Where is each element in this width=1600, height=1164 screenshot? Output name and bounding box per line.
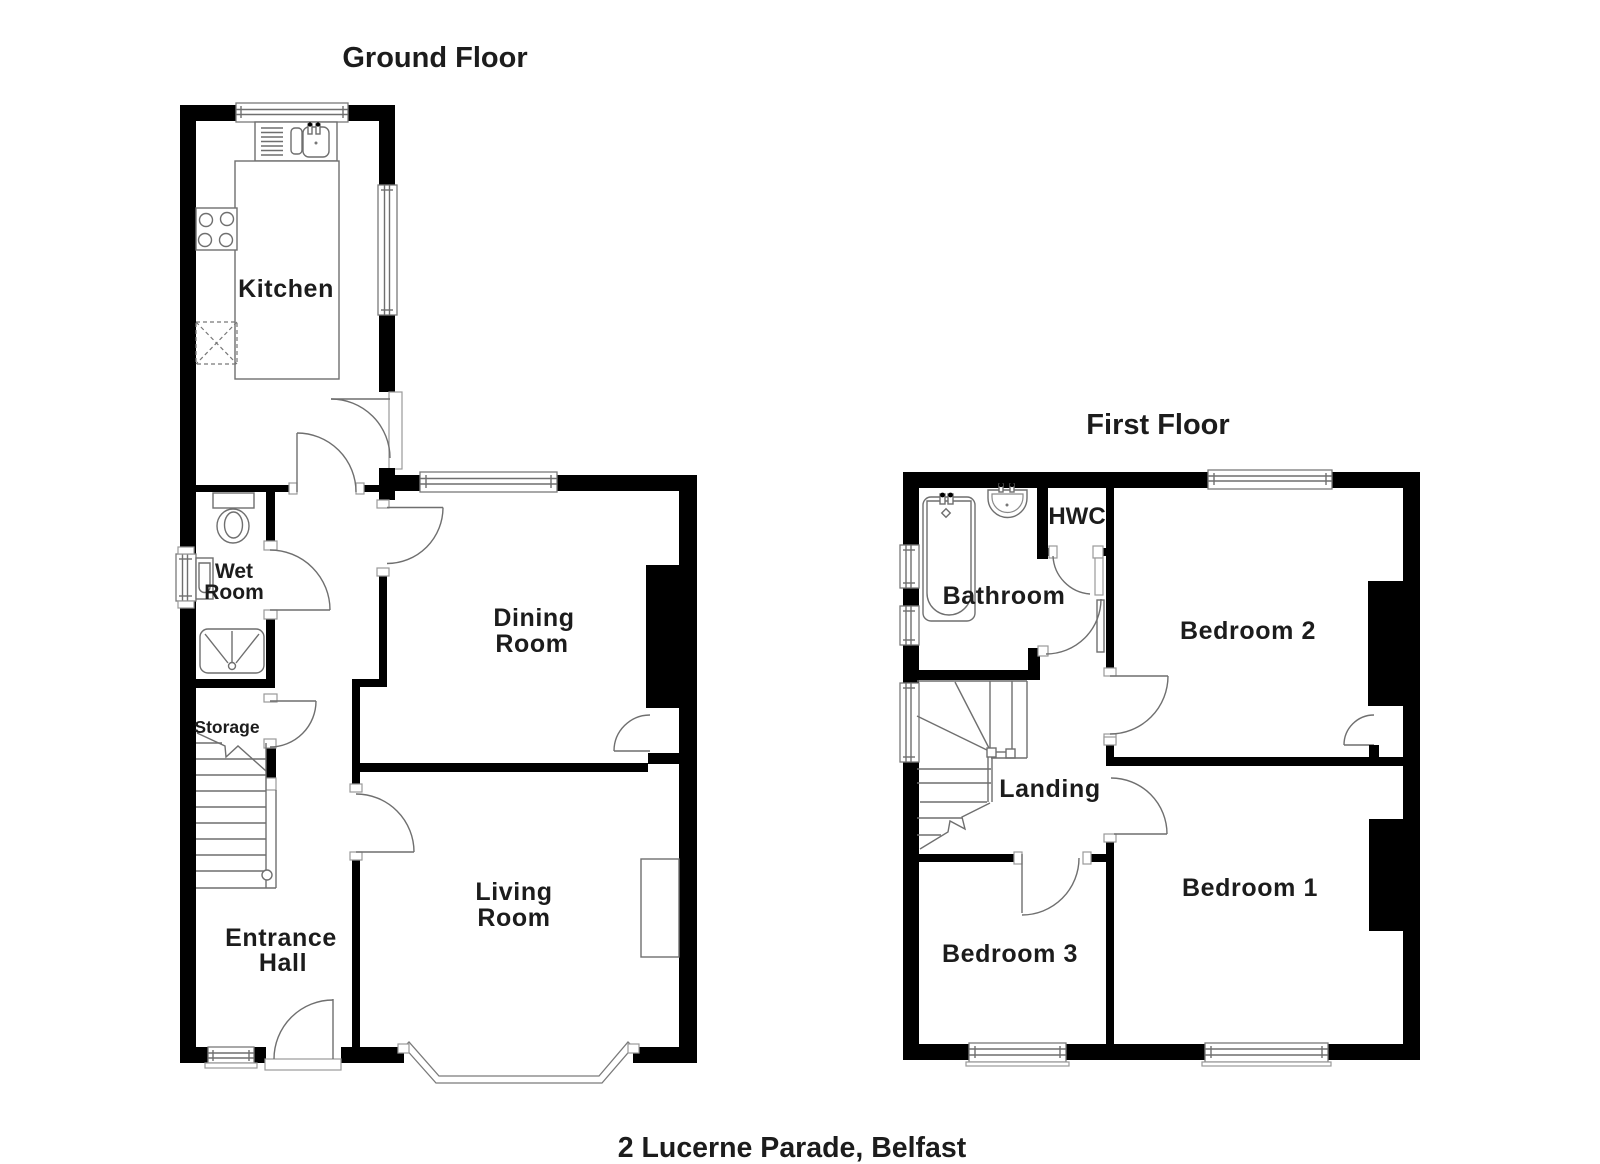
svg-text:Bedroom 1: Bedroom 1 — [1182, 874, 1318, 902]
svg-text:Entrance: Entrance — [225, 924, 337, 952]
svg-text:Room: Room — [204, 581, 264, 604]
svg-text:Room: Room — [477, 904, 550, 932]
svg-text:Hall: Hall — [259, 949, 307, 977]
svg-text:Bedroom 3: Bedroom 3 — [942, 940, 1078, 968]
svg-text:Living: Living — [475, 878, 552, 906]
svg-text:Wet: Wet — [215, 560, 253, 583]
svg-text:2 Lucerne Parade, Belfast: 2 Lucerne Parade, Belfast — [618, 1132, 967, 1164]
svg-text:Bathroom: Bathroom — [943, 582, 1066, 610]
svg-text:Bedroom 2: Bedroom 2 — [1180, 617, 1316, 645]
svg-text:HWC: HWC — [1048, 503, 1105, 530]
svg-text:Dining: Dining — [493, 604, 574, 632]
svg-text:Kitchen: Kitchen — [238, 275, 334, 303]
svg-text:Landing: Landing — [999, 775, 1100, 803]
svg-text:Storage: Storage — [194, 717, 259, 737]
svg-text:First Floor: First Floor — [1086, 409, 1229, 441]
svg-text:Ground Floor: Ground Floor — [342, 42, 527, 74]
svg-text:Room: Room — [495, 630, 568, 658]
